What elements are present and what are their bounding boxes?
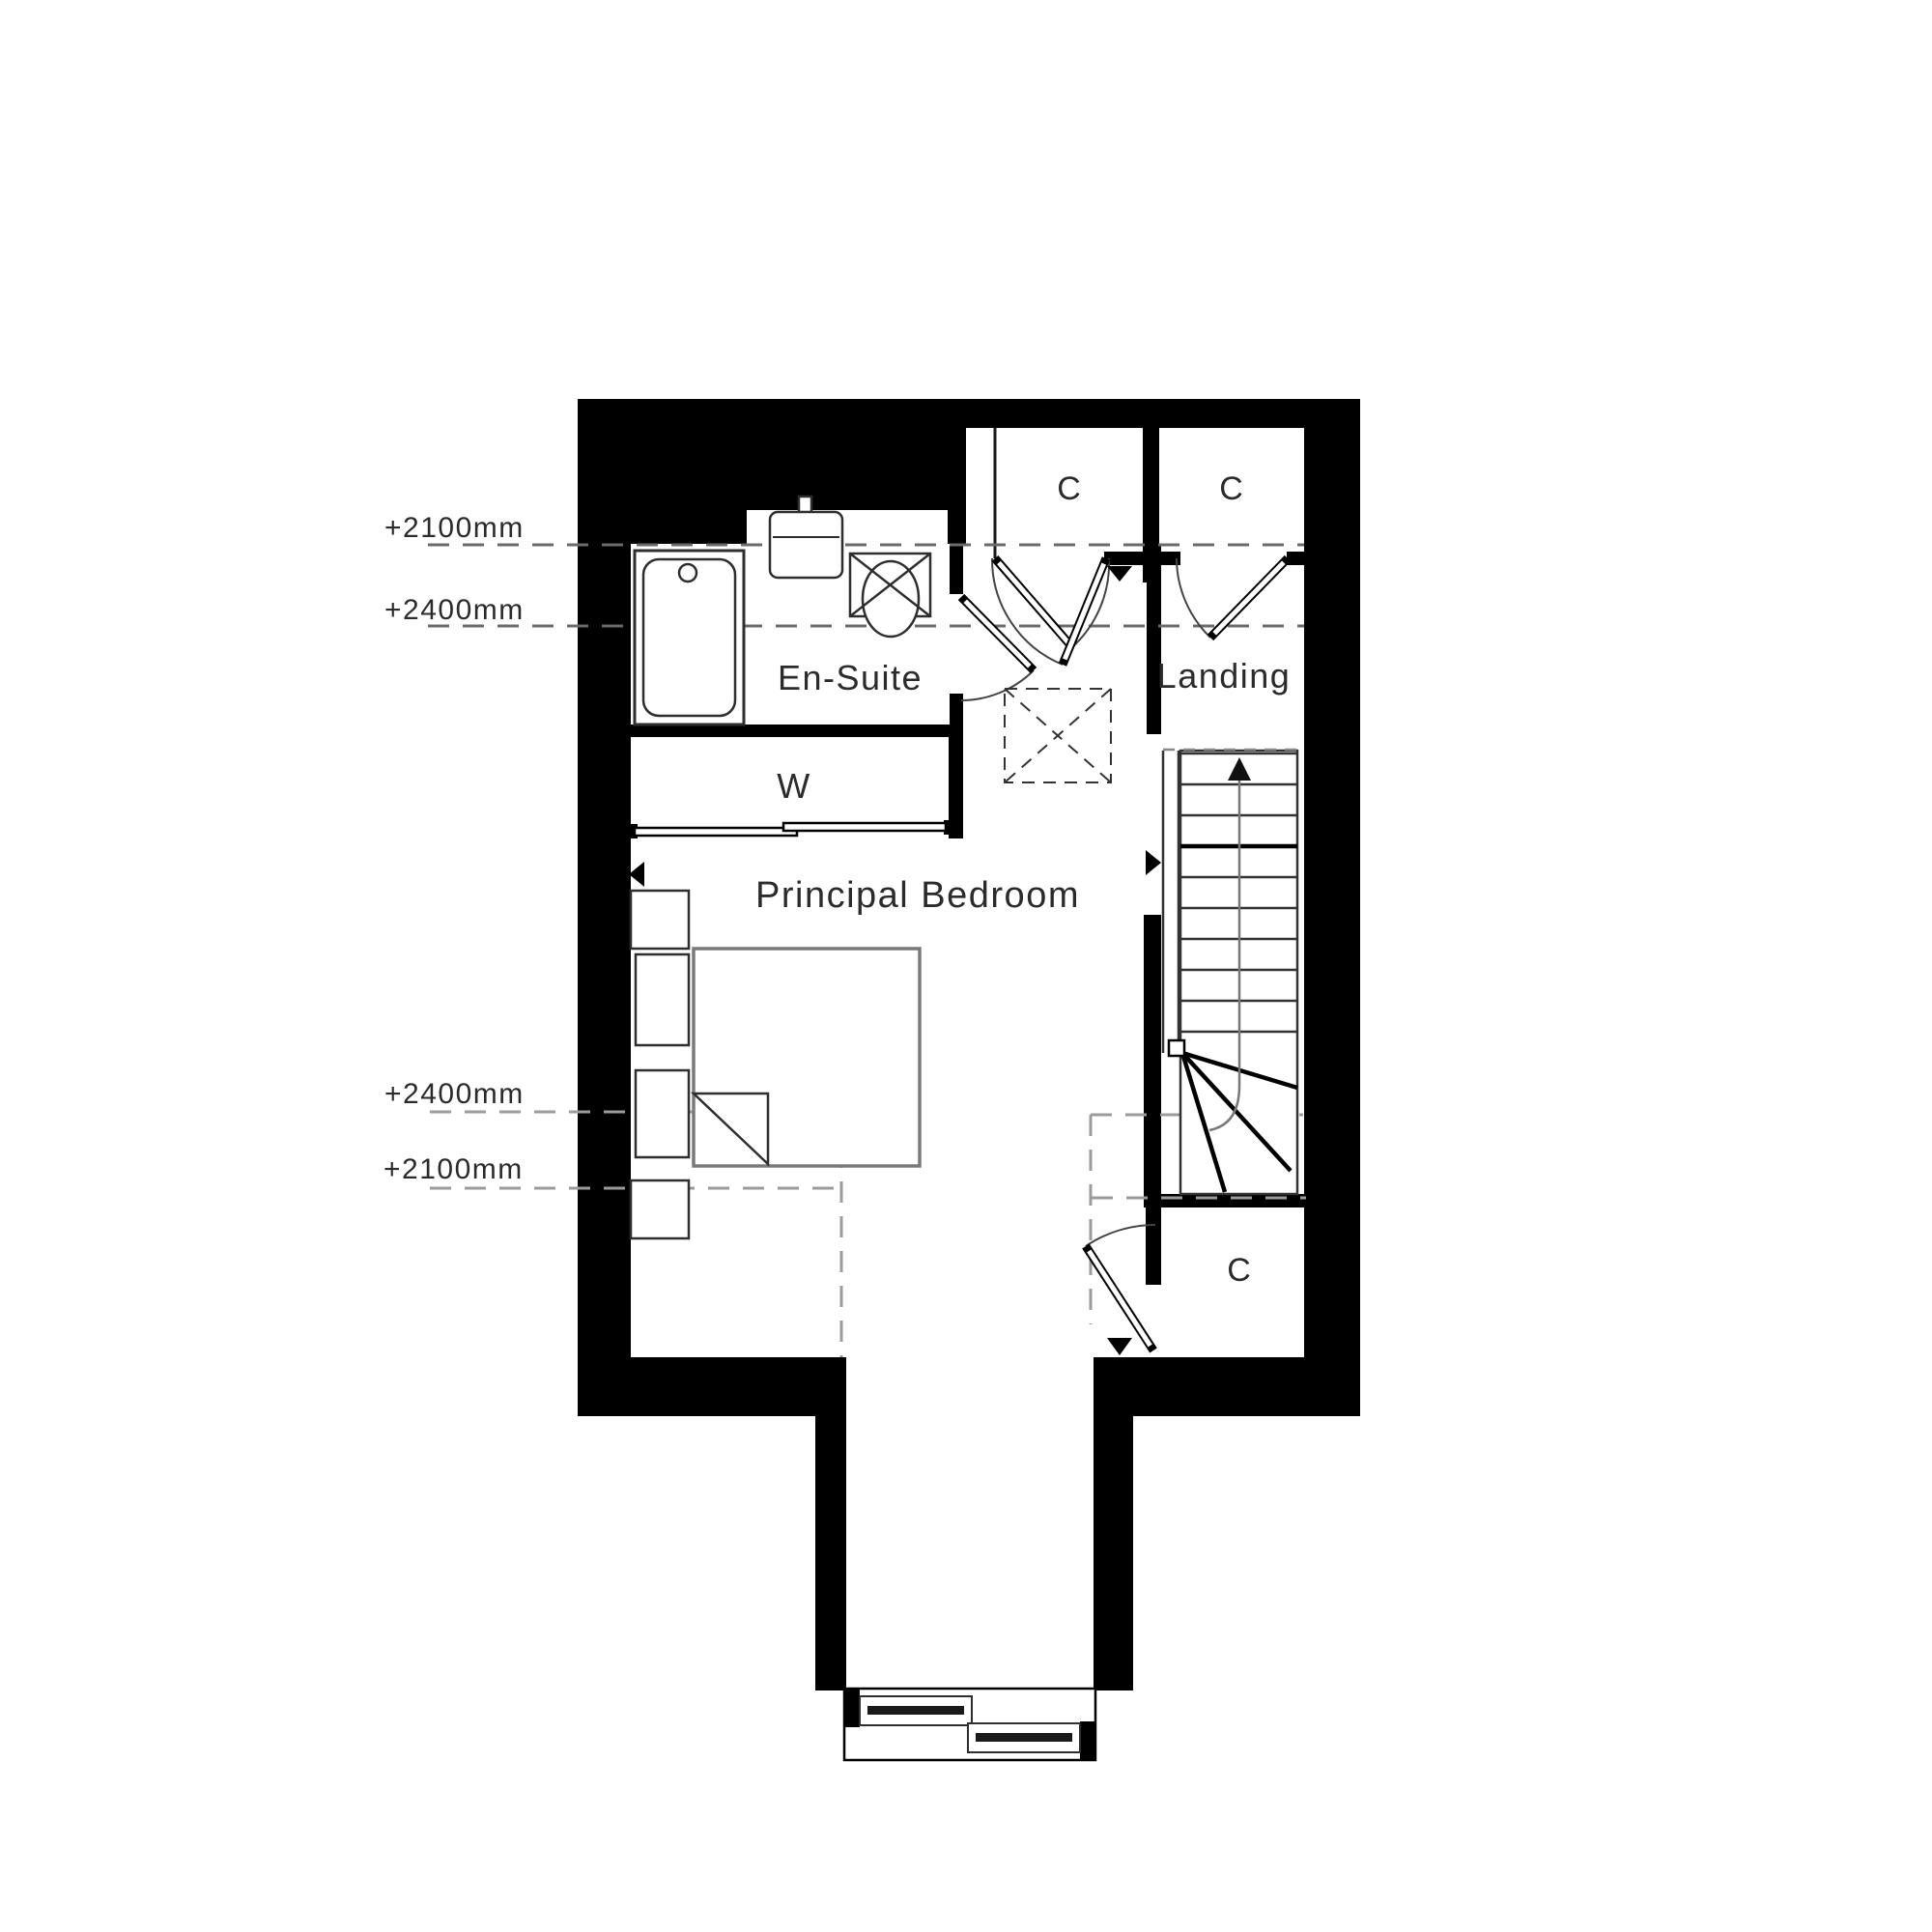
- floor-plan-drawing: +2100mm +2400mm +2400mm +2100mm En-Suite…: [0, 0, 1932, 1932]
- sliding-door-icon: [631, 820, 951, 838]
- wall-top-right: [964, 399, 1360, 428]
- wall-bay-left: [815, 1416, 846, 1690]
- closet-left-door-leaf-a: [995, 558, 1072, 647]
- wall-ensuite-bottom: [631, 724, 963, 737]
- stair-newel: [1169, 1040, 1184, 1056]
- room-label-closet-bottom: C: [1227, 1252, 1252, 1289]
- closet-left-door-arc-b: [992, 558, 1063, 665]
- rooflight-hatch-icon: [1005, 689, 1111, 782]
- marker-bottom-down-triangle: [1107, 1338, 1132, 1355]
- wall-bottom-left: [630, 1357, 846, 1416]
- floor-plan-canvas: +2100mm +2400mm +2400mm +2100mm En-Suite…: [0, 0, 1932, 1932]
- wall-bedroom-right-lower: [1144, 915, 1161, 1207]
- closet-left-door-leaf-b: [1063, 558, 1106, 665]
- wall-top-left-block: [578, 399, 747, 544]
- wall-closet-bottom-left: [1146, 1207, 1161, 1285]
- wall-ensuite-door-stub-top: [950, 544, 963, 594]
- room-label-wardrobe: W: [777, 766, 810, 806]
- wall-bedroom-right-upper: [1147, 544, 1161, 734]
- ensuite-door-leaf: [961, 597, 1034, 670]
- bed-icon: [631, 891, 920, 1238]
- room-label-en-suite: En-Suite: [778, 658, 923, 697]
- wall-wardrobe-right: [949, 737, 963, 838]
- room-label-principal-bedroom: Principal Bedroom: [755, 875, 1080, 916]
- toilet-icon: [850, 554, 930, 637]
- wall-bay-right: [1094, 1416, 1133, 1690]
- wall-under-stairs: [1145, 1194, 1306, 1207]
- ceiling-marker-lower-2400: +2400mm: [384, 1078, 525, 1110]
- wall-right: [1304, 428, 1360, 1416]
- wall-bottom-right: [1094, 1357, 1360, 1416]
- marker-right-wall-triangle: [1146, 850, 1161, 875]
- closet-bottom-door-arc: [1086, 1225, 1155, 1246]
- room-label-closet-top-right: C: [1219, 470, 1244, 507]
- ceiling-marker-upper-2100: +2100mm: [384, 512, 525, 544]
- wall-left: [578, 399, 631, 1416]
- room-label-closet-top-left: C: [1057, 470, 1082, 507]
- wall-ensuite-closet-divider: [948, 399, 966, 544]
- bed-outline: [694, 949, 920, 1166]
- ensuite-door-arc: [961, 670, 1034, 700]
- pillow-top: [636, 954, 689, 1045]
- wall-top-ensuite: [747, 399, 950, 510]
- nightstand-top: [631, 891, 689, 949]
- room-label-landing: Landing: [1157, 656, 1292, 696]
- bath-icon: [635, 551, 744, 724]
- nightstand-bottom: [631, 1180, 689, 1238]
- sliding-window-icon: [844, 1689, 1095, 1760]
- marker-left-wall-triangle: [629, 862, 644, 887]
- marker-lobby-down-triangle: [1107, 566, 1132, 582]
- pillow-bottom: [636, 1070, 689, 1157]
- stairs-up-arrow-icon: [1163, 750, 1302, 1194]
- ceiling-marker-upper-2400: +2400mm: [384, 594, 525, 626]
- closet-bottom-door-leaf: [1086, 1246, 1153, 1350]
- wall-lobby-bar-right: [1287, 552, 1304, 565]
- ceiling-marker-lower-2100: +2100mm: [384, 1153, 524, 1185]
- wall-lobby-bar-left: [1104, 552, 1180, 565]
